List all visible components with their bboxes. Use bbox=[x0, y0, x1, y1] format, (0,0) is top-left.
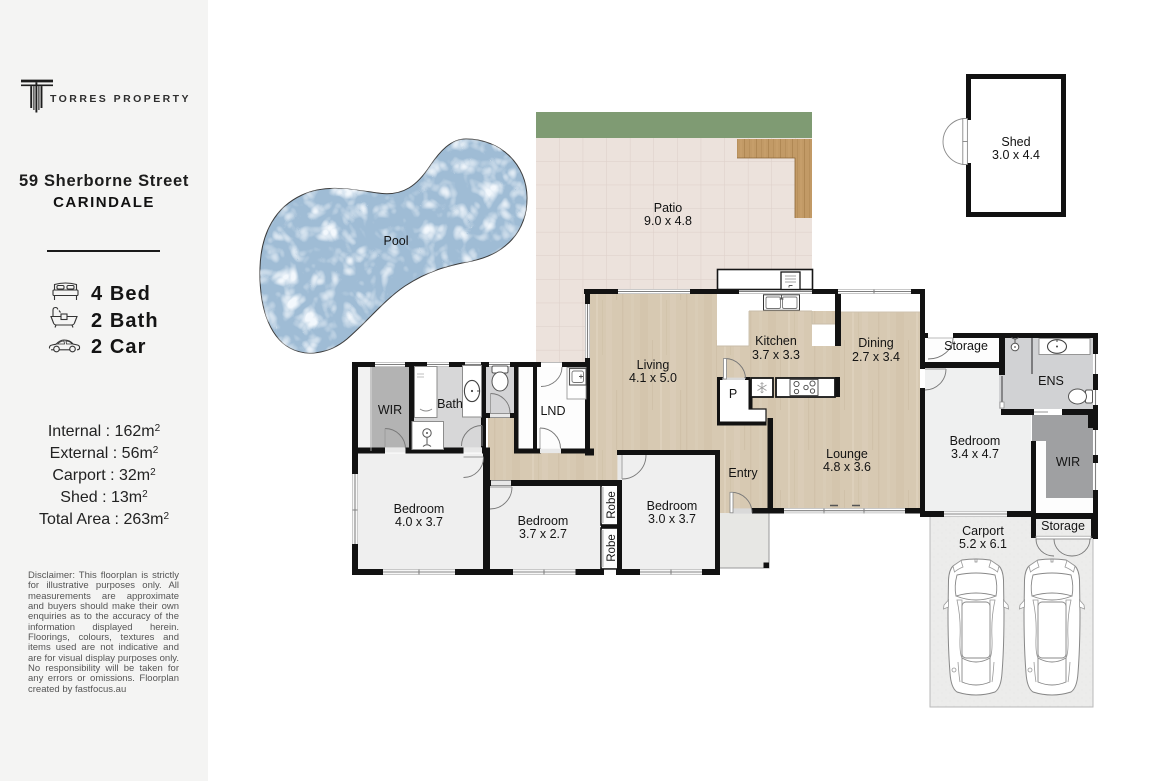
svg-text:3.4 x 4.7: 3.4 x 4.7 bbox=[951, 447, 999, 461]
svg-text:Storage: Storage bbox=[944, 339, 988, 353]
svg-text:5.2 x 6.1: 5.2 x 6.1 bbox=[959, 537, 1007, 551]
svg-text:3.7 x 3.3: 3.7 x 3.3 bbox=[752, 348, 800, 362]
svg-text:Bedroom: Bedroom bbox=[647, 499, 698, 513]
svg-text:Lounge: Lounge bbox=[826, 447, 868, 461]
svg-text:Dining: Dining bbox=[858, 336, 893, 350]
svg-text:Living: Living bbox=[637, 358, 670, 372]
svg-text:WIR: WIR bbox=[1056, 455, 1080, 469]
svg-text:4.0 x 3.7: 4.0 x 3.7 bbox=[395, 515, 443, 529]
svg-text:Kitchen: Kitchen bbox=[755, 334, 797, 348]
svg-text:9.0 x 4.8: 9.0 x 4.8 bbox=[644, 214, 692, 228]
svg-text:3.0 x 4.4: 3.0 x 4.4 bbox=[992, 148, 1040, 162]
svg-text:ENS: ENS bbox=[1038, 374, 1064, 388]
svg-text:2.7 x 3.4: 2.7 x 3.4 bbox=[852, 350, 900, 364]
svg-text:Bedroom: Bedroom bbox=[950, 434, 1001, 448]
svg-text:3.7 x 2.7: 3.7 x 2.7 bbox=[519, 527, 567, 541]
svg-text:Entry: Entry bbox=[728, 466, 758, 480]
svg-text:4.8 x 3.6: 4.8 x 3.6 bbox=[823, 460, 871, 474]
svg-text:P: P bbox=[729, 387, 737, 401]
svg-text:Patio: Patio bbox=[654, 201, 683, 215]
svg-text:Shed: Shed bbox=[1001, 135, 1030, 149]
svg-text:Bedroom: Bedroom bbox=[518, 514, 569, 528]
svg-text:LND: LND bbox=[540, 404, 565, 418]
svg-text:4.1 x 5.0: 4.1 x 5.0 bbox=[629, 371, 677, 385]
svg-text:Bath: Bath bbox=[437, 397, 463, 411]
svg-text:Robe: Robe bbox=[606, 491, 618, 519]
svg-text:WIR: WIR bbox=[378, 403, 402, 417]
svg-text:3.0 x 3.7: 3.0 x 3.7 bbox=[648, 512, 696, 526]
svg-text:Pool: Pool bbox=[383, 234, 408, 248]
svg-text:Bedroom: Bedroom bbox=[394, 502, 445, 516]
svg-text:Robe: Robe bbox=[606, 534, 618, 562]
svg-text:Storage: Storage bbox=[1041, 519, 1085, 533]
svg-text:Carport: Carport bbox=[962, 524, 1004, 538]
